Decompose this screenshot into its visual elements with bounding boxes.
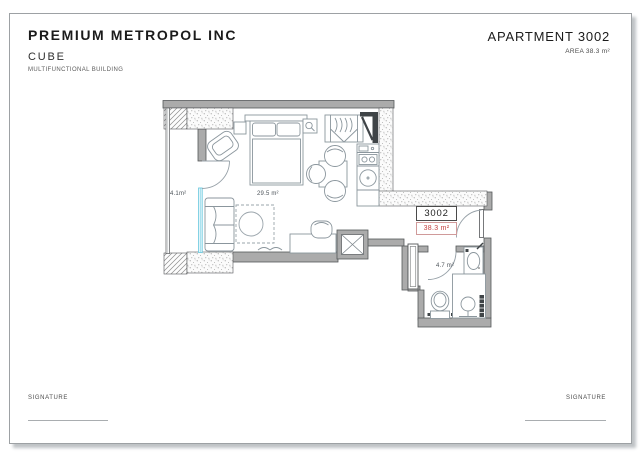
company-name: PREMIUM METROPOL INC <box>28 27 237 43</box>
unit-number: 3002 <box>416 206 457 221</box>
project-subtitle: MULTIFUNCTIONAL BUILDING <box>28 67 123 73</box>
project-name: CUBE <box>28 51 66 63</box>
signature-label-right: SIGNATURE <box>566 395 606 401</box>
signature-line-left <box>28 420 108 421</box>
signature-line-right <box>525 420 606 421</box>
apartment-area-label: AREA 38.3 m² <box>565 48 610 55</box>
unit-area-value: 38.3 m² <box>416 222 457 235</box>
bathroom-area-label: 4.7 m² <box>436 263 454 269</box>
apartment-title: APARTMENT 3002 <box>488 29 610 44</box>
document-sheet <box>9 13 632 444</box>
signature-label-left: SIGNATURE <box>28 395 68 401</box>
page-background: PREMIUM METROPOL INC CUBE MULTIFUNCTIONA… <box>0 0 640 452</box>
living-area-label: 29.5 m² <box>257 191 279 197</box>
entry-area-label: 4.1m² <box>170 191 186 197</box>
unit-tag: 3002 38.3 m² <box>416 206 457 235</box>
